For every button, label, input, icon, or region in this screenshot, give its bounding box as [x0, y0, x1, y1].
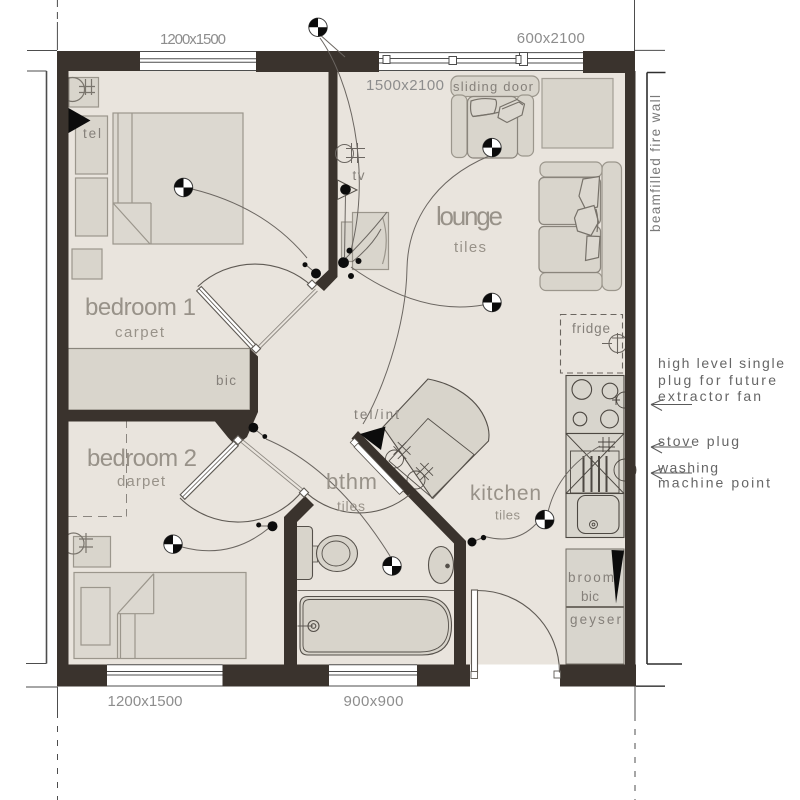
svg-text:1200x1500: 1200x1500: [160, 31, 226, 48]
svg-text:sliding door: sliding door: [453, 79, 534, 94]
svg-text:tiles: tiles: [495, 508, 521, 523]
svg-text:tel/int: tel/int: [354, 407, 399, 422]
svg-text:plug for future: plug for future: [658, 372, 776, 388]
svg-text:bedroom 2: bedroom 2: [87, 445, 197, 472]
svg-text:1200x1500: 1200x1500: [108, 693, 183, 710]
svg-text:600x2100: 600x2100: [517, 30, 585, 47]
svg-text:bthm: bthm: [326, 469, 377, 494]
svg-text:kitchen: kitchen: [470, 482, 541, 505]
svg-text:extractor fan: extractor fan: [658, 388, 761, 404]
svg-text:tiles: tiles: [337, 498, 365, 514]
svg-text:tv: tv: [353, 168, 365, 183]
svg-text:darpet: darpet: [117, 473, 166, 490]
svg-text:bic: bic: [216, 373, 236, 388]
svg-text:tel: tel: [83, 126, 101, 141]
svg-text:900x900: 900x900: [344, 693, 404, 710]
svg-text:1500x2100: 1500x2100: [366, 77, 444, 94]
svg-text:stove plug: stove plug: [658, 433, 739, 449]
svg-text:tiles: tiles: [454, 239, 486, 256]
svg-text:carpet: carpet: [115, 324, 165, 341]
svg-text:bedroom 1: bedroom 1: [85, 294, 196, 321]
svg-text:bic: bic: [581, 589, 599, 604]
svg-text:high level single: high level single: [658, 355, 784, 371]
svg-text:beamfilled fire wall: beamfilled fire wall: [648, 95, 663, 232]
svg-text:fridge: fridge: [572, 321, 610, 336]
svg-text:broom: broom: [568, 570, 614, 585]
svg-text:lounge: lounge: [436, 201, 503, 231]
